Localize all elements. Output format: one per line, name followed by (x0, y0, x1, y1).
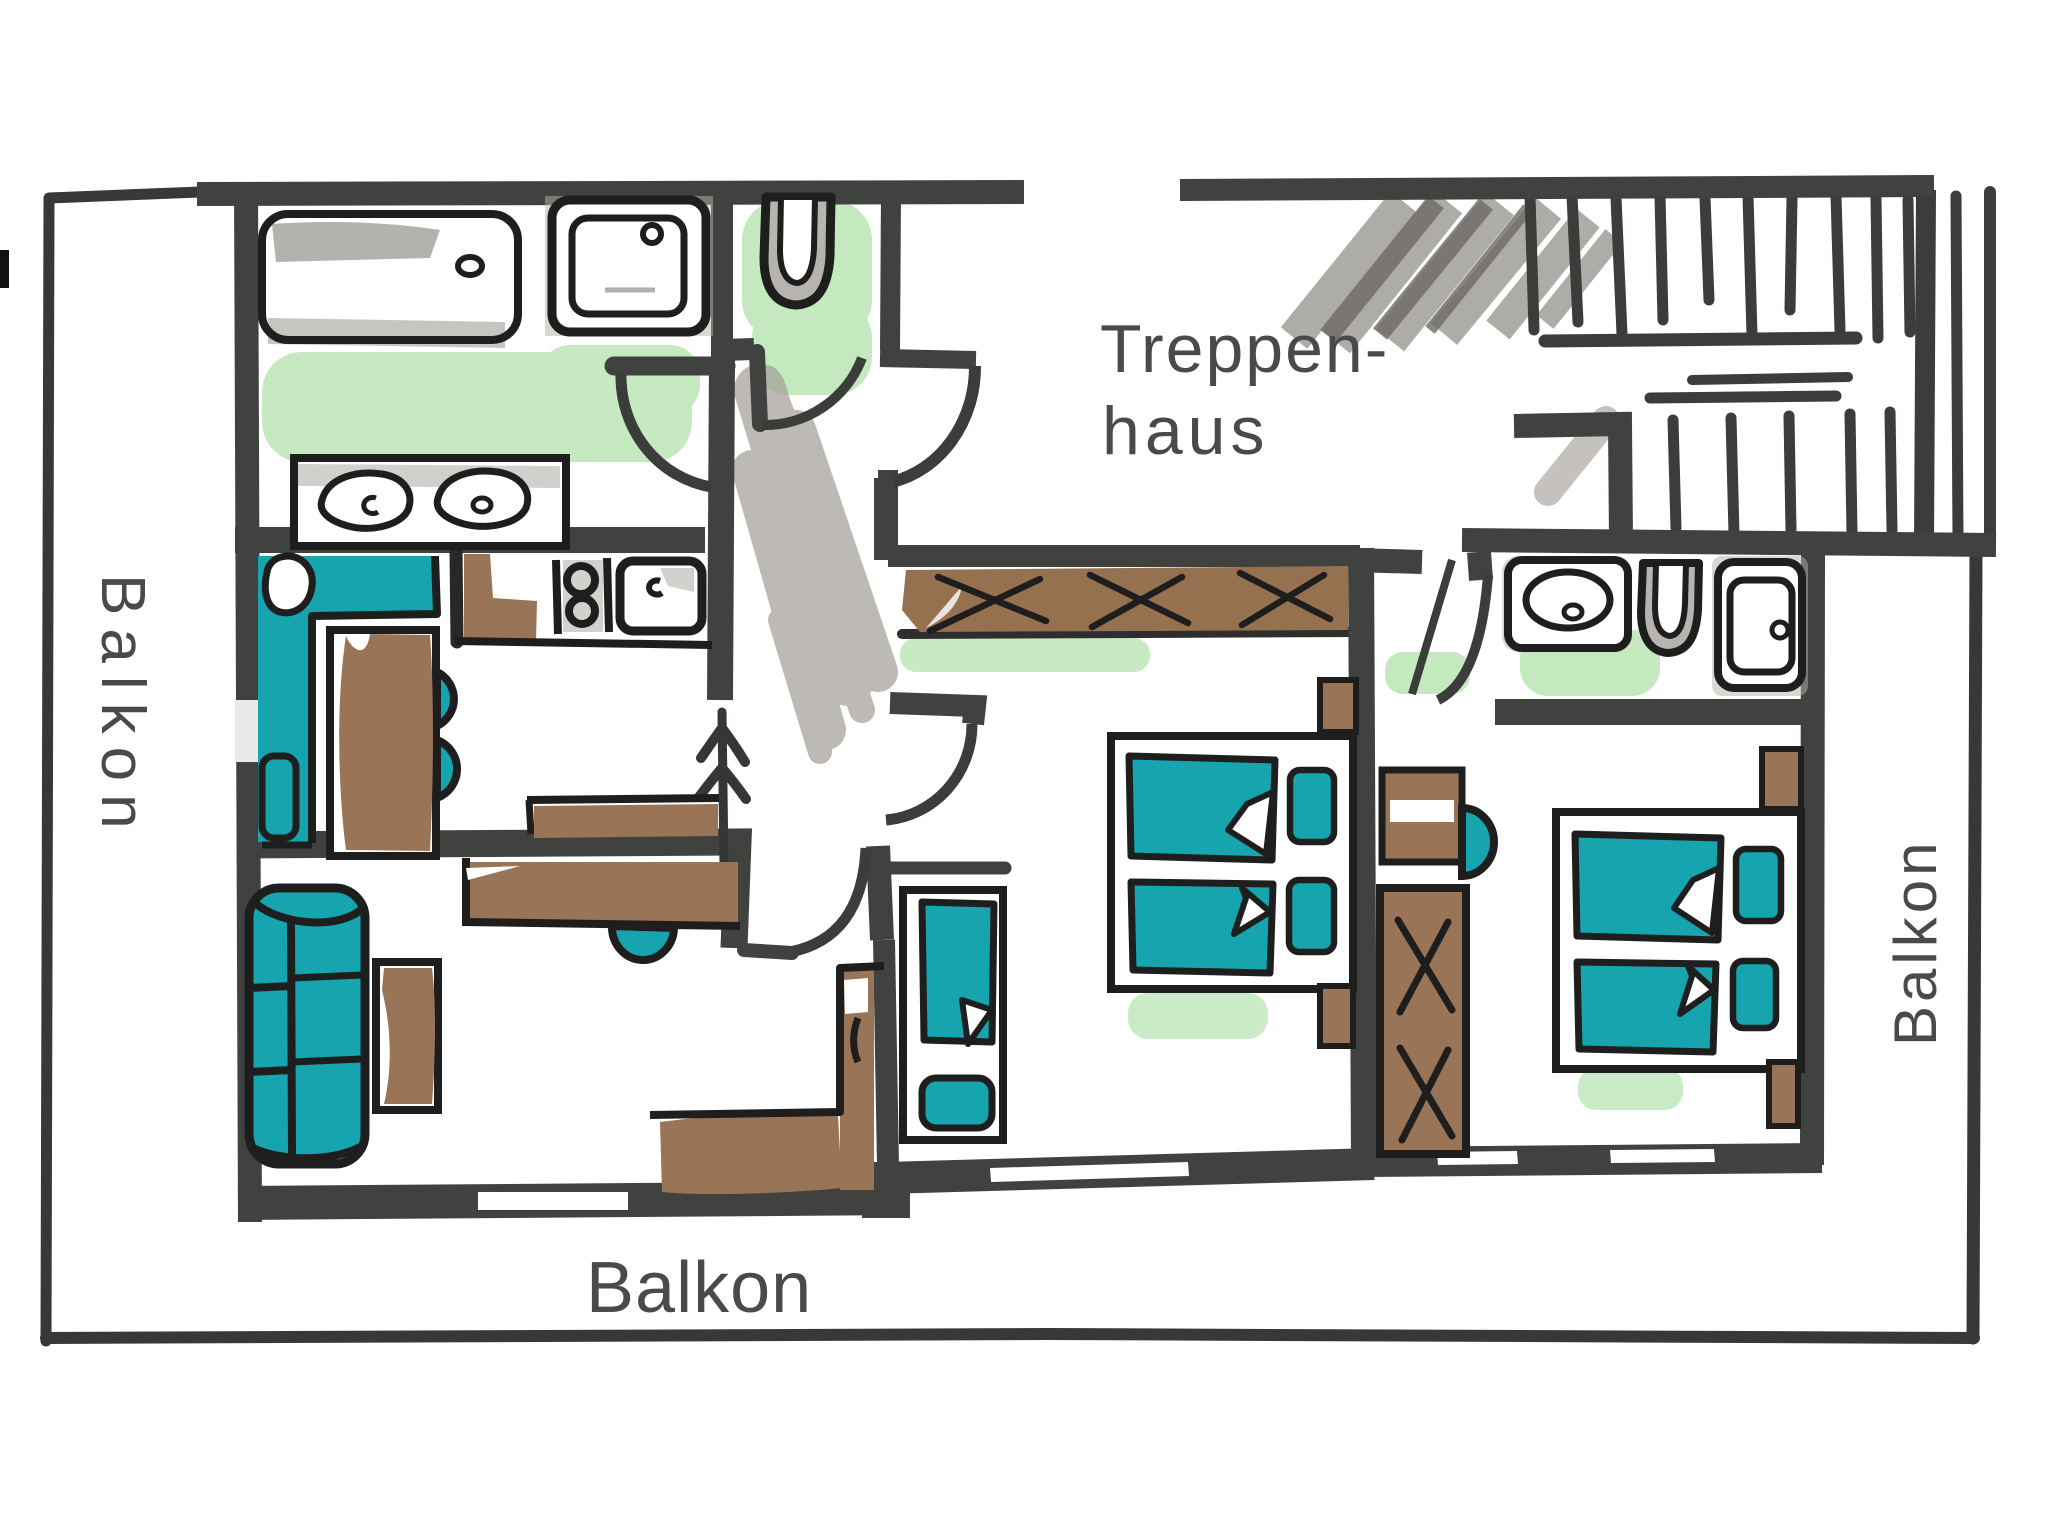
svg-text:Treppen-: Treppen- (1100, 311, 1389, 387)
svg-text:haus: haus (1102, 393, 1269, 469)
svg-text:Balkon: Balkon (586, 1248, 812, 1328)
svg-text:Balkon: Balkon (88, 574, 157, 842)
svg-text:Balkon: Balkon (1882, 839, 1949, 1046)
